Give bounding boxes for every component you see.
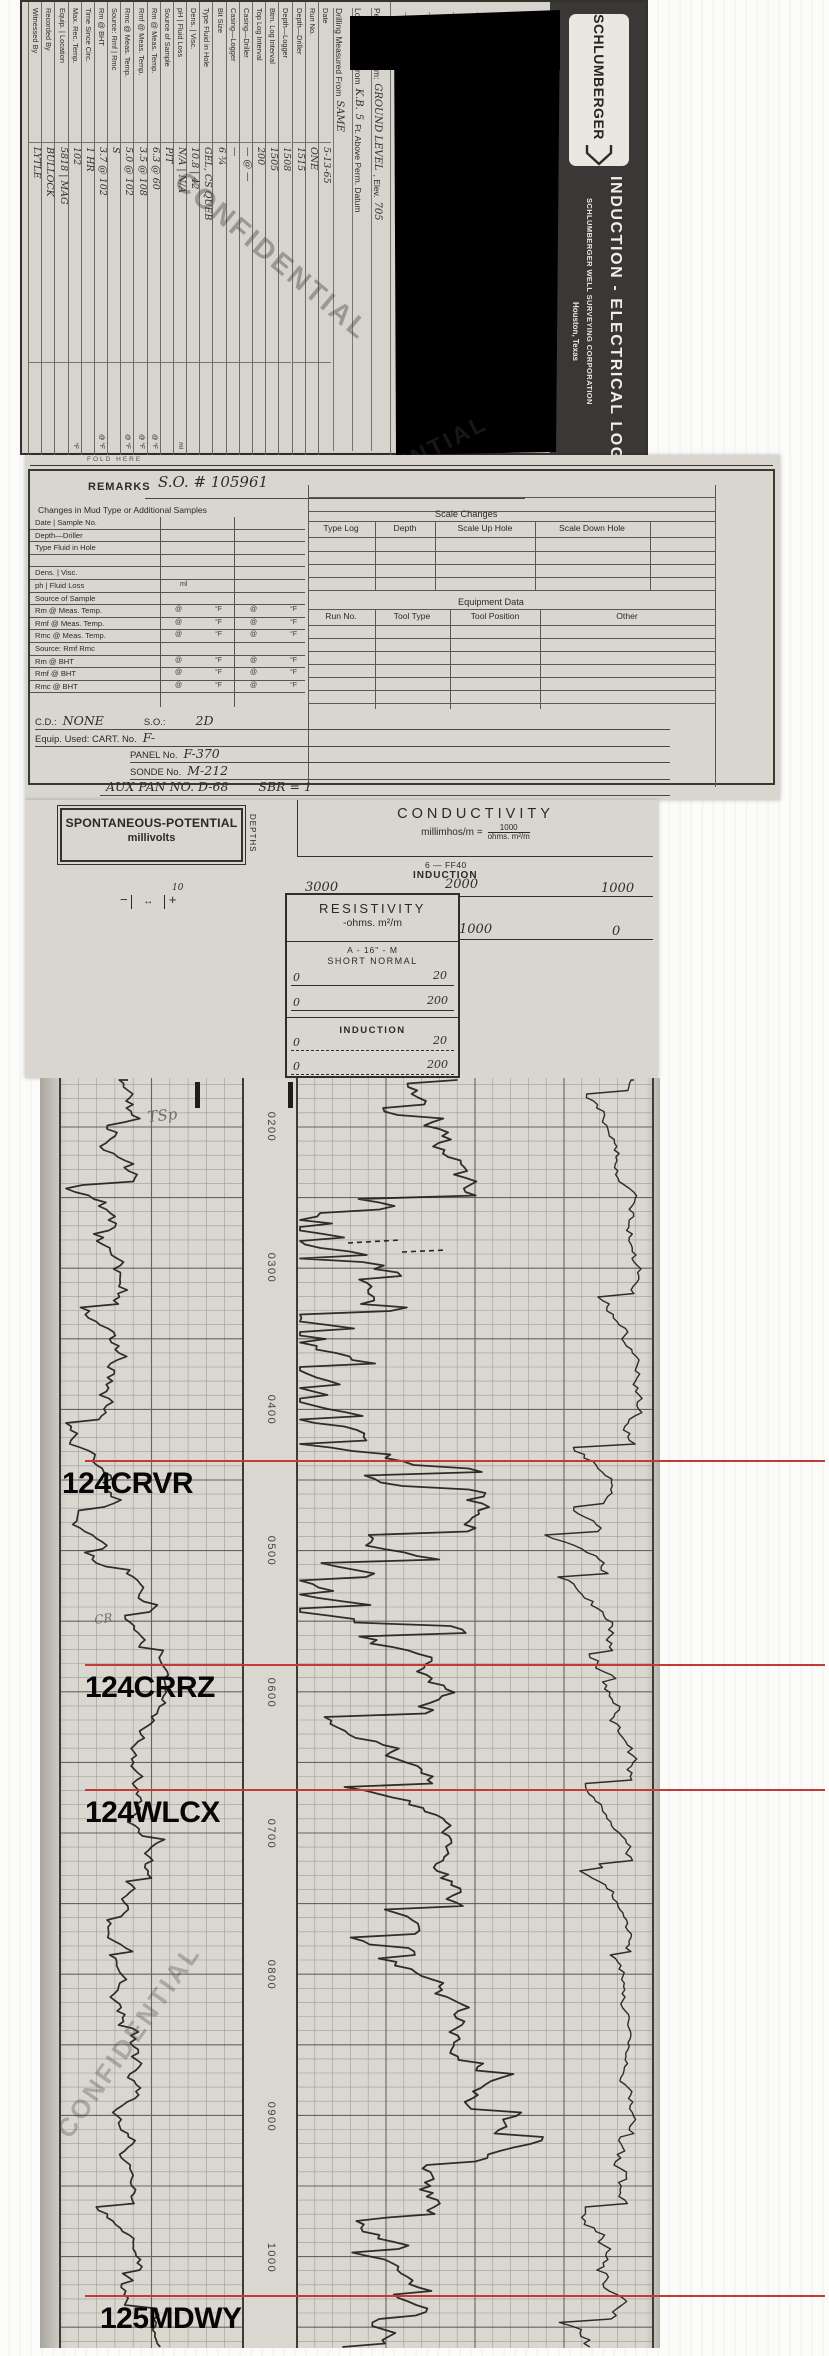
run-table-row: Max. Rec. Temp.102°F: [68, 2, 81, 457]
log-measured-line: Log Measured From K.B. 5 Ft. Above Perm.…: [352, 8, 372, 451]
temp-mark: @: [250, 631, 257, 638]
run-row-value: 5-13-65: [321, 147, 332, 184]
column-divider: [435, 521, 436, 591]
run-row-label: Top Log Interval: [255, 8, 264, 61]
pencil-note: CR: [93, 1611, 113, 1627]
run-row-value: 102: [71, 147, 82, 165]
cell-divider: [266, 362, 278, 363]
temp-mark: @: [250, 682, 257, 689]
drilling-measured-line: Drilling Measured From SAME: [333, 8, 353, 451]
footer-value: NONE: [63, 713, 104, 728]
run-row-label: Casing—Driller: [242, 8, 251, 58]
cond-scale-1000: 1000: [601, 881, 634, 896]
log-header-sheet: SCHLUMBERGER INDUCTION - ELECTRICAL LOG …: [20, 0, 648, 455]
run-row-label: Depth—Driller: [295, 8, 304, 54]
mud-changes-row: Rmf @ Meas. Temp.@°F@°F: [30, 618, 305, 631]
footer-value: F-370: [184, 746, 220, 761]
cell-divider: [174, 142, 186, 143]
run-table-row: Rm @ BHT3.7 @ 102@ °F: [94, 2, 107, 457]
mud-changes-label: Type Fluid in Hole: [35, 543, 96, 552]
run-row-value: BULLOCK: [44, 147, 55, 197]
sp-scale-marker: − ↔ + 10: [120, 892, 230, 922]
mud-changes-label: Rmf @ BHT: [35, 669, 76, 678]
cell-divider: [213, 362, 225, 363]
header-top-line: [308, 521, 715, 522]
run-row-unit: °F: [72, 442, 79, 449]
run-row-label: Type Fluid in Hole: [202, 8, 211, 67]
cell-divider: [161, 362, 173, 363]
cell-divider: [187, 142, 199, 143]
equipment-column-header: Tool Position: [471, 611, 520, 621]
empty-row-line: [308, 497, 715, 498]
drilling-measured-value: SAME: [334, 100, 345, 132]
cell-divider: [293, 142, 305, 143]
conductivity-scale-line-2: [453, 939, 653, 940]
cell-divider: [227, 142, 239, 143]
temp-mark: @: [175, 631, 182, 638]
run-table-row: Source of SamplePIT: [160, 2, 173, 457]
cell-divider: [69, 142, 81, 143]
unit-mark: ml: [180, 581, 187, 588]
footer-value: M-212: [187, 763, 228, 778]
elev-label: , Elev.: [372, 175, 382, 198]
remarks-label: REMARKS: [88, 481, 151, 493]
run-row-unit: @ °F: [98, 434, 105, 449]
cell-divider: [108, 142, 120, 143]
run-data-table: Date5-13-65Run No.ONEDepth—Driller1515De…: [28, 2, 331, 457]
column-divider: [450, 609, 451, 709]
depth-label: 0700: [265, 1819, 277, 1849]
run-row-value: PIT: [163, 147, 174, 163]
mud-changes-label: Rmf @ Meas. Temp.: [35, 619, 104, 628]
header-bottom-line: [308, 625, 715, 626]
remarks-box: REMARKS S.O. # 105961 Changes in Mud Typ…: [28, 469, 775, 785]
above-datum-label: Ft. Above Perm. Datum: [353, 124, 363, 212]
run-table-row: Time Since Circ.1 HR: [81, 2, 94, 457]
depth-tick: [195, 1082, 200, 1108]
temp-mark: @: [175, 682, 182, 689]
column-divider: [535, 521, 536, 591]
run-table-row: Type Fluid in HoleGEL, CS QUEB: [199, 2, 212, 457]
run-row-value: S: [110, 147, 121, 154]
table-divider: [160, 517, 161, 707]
run-row-value: LYTLE: [31, 147, 42, 179]
temp-mark: °F: [215, 682, 222, 689]
footer-label: Equip. Used: CART. No.: [35, 734, 137, 745]
schlumberger-banner: SCHLUMBERGER INDUCTION - ELECTRICAL LOG …: [550, 2, 646, 457]
mud-changes-row: Rm @ BHT@°F@°F: [30, 656, 305, 669]
footer-value: AUX PAN NO. D-68: [106, 779, 228, 794]
cell-divider: [42, 362, 54, 363]
empty-row-line: [308, 651, 715, 652]
temp-mark: °F: [290, 682, 297, 689]
scale-changes-column-header: Type Log: [323, 523, 358, 533]
cell-divider: [253, 362, 265, 363]
conductivity-header-box: CONDUCTIVITY millimhos/m = 1000 ohms. m²…: [297, 800, 653, 857]
equipment-used-line: AUX PAN NO. D-68SBR = 1: [100, 779, 670, 796]
run-table-row: Equip. | Location5818 | MAG: [54, 2, 67, 457]
formation-marker-label: 125MDWY: [100, 2302, 242, 2336]
run-table-row: Depth—Logger1508: [278, 2, 291, 457]
cell-divider: [121, 362, 133, 363]
cell-divider: [213, 142, 225, 143]
cell-divider: [29, 142, 41, 143]
run-row-label: Btm. Log Interval: [268, 8, 277, 64]
mud-changes-row: ph | Fluid Lossml: [30, 580, 305, 593]
mud-changes-label: Rm @ Meas. Temp.: [35, 606, 102, 615]
temp-mark: °F: [290, 606, 297, 613]
cell-divider: [134, 362, 146, 363]
schlumberger-logo-text: SCHLUMBERGER: [591, 14, 607, 140]
equipment-data-title: Equipment Data: [458, 597, 524, 607]
footer-label: SONDE No.: [130, 767, 181, 778]
remarks-sheet: FOLD HERE REMARKS S.O. # 105961 Changes …: [25, 455, 780, 800]
empty-row-line: [308, 677, 715, 678]
ind-scale1-left: 0: [293, 1036, 300, 1049]
cell-divider: [240, 142, 252, 143]
cell-divider: [200, 142, 212, 143]
run-table-row: Recorded ByBULLOCK: [41, 2, 54, 457]
conductivity-title: CONDUCTIVITY: [298, 806, 653, 822]
remarks-underline: [145, 498, 525, 499]
run-row-value: 5.0 @ 102: [123, 147, 134, 196]
sp-header-box: SPONTANEOUS-POTENTIAL millivolts: [60, 808, 243, 862]
run-row-unit: @ °F: [151, 434, 158, 449]
empty-row-line: [308, 590, 715, 591]
run-row-value: 5818 | MAG: [58, 147, 69, 205]
scale-changes-column-header: Scale Down Hole: [559, 523, 625, 533]
run-row-label: Recorded By: [44, 8, 53, 51]
temp-mark: @: [175, 619, 182, 626]
temp-mark: °F: [290, 657, 297, 664]
ind-scale1-right: 20: [433, 1034, 447, 1047]
induction-scale-1: [291, 1050, 454, 1051]
mud-changes-label: Rm @ BHT: [35, 657, 74, 666]
cell-divider: [69, 362, 81, 363]
formation-marker-line: [85, 1664, 825, 1666]
temp-mark: °F: [290, 669, 297, 676]
cell-divider: [200, 362, 212, 363]
run-table-row: Dens. | Visc.10.8 | 42: [186, 2, 199, 457]
run-row-value: 200: [255, 147, 266, 165]
empty-row-line: [308, 564, 715, 565]
run-table-row: Depth—Driller1515: [292, 2, 305, 457]
mud-changes-label: Source of Sample: [35, 594, 95, 603]
depth-label: 0600: [265, 1678, 277, 1708]
footer-label: PANEL No.: [130, 750, 178, 761]
log-measured-label: Log Measured From: [353, 8, 363, 85]
cond-scale2-0: 0: [612, 924, 620, 939]
run-table-row: Btm. Log Interval1505: [265, 2, 278, 457]
mud-changes-label: Rmc @ Meas. Temp.: [35, 631, 106, 640]
divider: [287, 941, 458, 942]
run-row-label: Max. Rec. Temp.: [71, 8, 80, 63]
run-row-value: 6 ¾: [216, 147, 227, 165]
run-row-label: Source of Sample: [163, 8, 172, 67]
equipment-used-line: SONDE No.M-212: [130, 763, 670, 780]
mud-changes-row: Rmc @ BHT@°F@°F: [30, 681, 305, 694]
scale-changes-column-header: Scale Up Hole: [458, 523, 513, 533]
column-divider: [650, 521, 651, 591]
log-grid-chart: 020003000400050006000700080009001000TSpC…: [0, 1078, 829, 2356]
cell-divider: [240, 362, 252, 363]
empty-row-line: [308, 551, 715, 552]
rotated-header-form: SCHLUMBERGER INDUCTION - ELECTRICAL LOG …: [20, 0, 648, 455]
footer-label: S.O.:: [144, 717, 166, 728]
depth-label: 0500: [265, 1536, 277, 1566]
equipment-used-line: Equip. Used: CART. No.F-: [35, 730, 670, 747]
permanent-datum-label: Permanent Datum:: [372, 8, 382, 79]
resistivity-title: RESISTIVITY: [287, 901, 458, 916]
schlumberger-logo: SCHLUMBERGER: [569, 14, 629, 166]
run-row-label: Run No.: [308, 8, 317, 35]
permanent-datum-value: GROUND LEVEL: [372, 83, 383, 170]
equipment-used-line: C.D.:NONES.O.:2D: [35, 713, 670, 730]
run-table-row: Witnessed ByLYTLE: [28, 2, 41, 457]
schlumberger-chevron-icon: [582, 144, 616, 166]
cond-scale-2000: 2000: [445, 877, 478, 892]
mud-changes-label: Dens. | Visc.: [35, 568, 77, 577]
temp-mark: °F: [215, 669, 222, 676]
run-table-row: Rmc @ Meas. Temp.5.0 @ 102@ °F: [120, 2, 133, 457]
divider: [287, 1017, 458, 1018]
depth-label: 0300: [265, 1253, 277, 1283]
temp-mark: @: [250, 619, 257, 626]
footer-value: SBR = 1: [258, 779, 312, 794]
sp-scale-bar: ↔: [131, 895, 165, 909]
sn-scale2-right: 200: [427, 994, 448, 1007]
mud-changes-row: Rmc @ Meas. Temp.@°F@°F: [30, 630, 305, 643]
empty-row-line: [308, 511, 715, 512]
equipment-used-line: PANEL No.F-370: [130, 746, 670, 763]
run-table-row: Run No.ONE: [305, 2, 318, 457]
sp-minus-sign: −: [120, 892, 128, 907]
run-row-value: 3.7 @ 102: [97, 147, 108, 196]
cell-divider: [55, 142, 67, 143]
run-row-unit: @ °F: [138, 434, 145, 449]
run-row-label: Dens. | Visc.: [189, 8, 198, 49]
run-row-label: Depth—Logger: [282, 8, 291, 58]
short-normal-scale-1: [291, 985, 454, 986]
table-divider: [234, 517, 235, 707]
mud-changes-label: Source: Rmf Rmc: [35, 644, 95, 653]
run-row-label: Casing—Logger: [229, 8, 238, 61]
temp-mark: °F: [215, 631, 222, 638]
datum-block: Permanent Datum: GROUND LEVEL , Elev. 70…: [331, 2, 391, 457]
sn-scale2-left: 0: [293, 996, 300, 1009]
sn-scale1-left: 0: [293, 971, 300, 984]
resistivity-units: -ohms. m²/m: [287, 917, 458, 929]
run-row-label: Date: [321, 8, 330, 24]
mud-changes-row: Rmf @ BHT@°F@°F: [30, 668, 305, 681]
short-normal-scale-2: [291, 1010, 454, 1011]
mud-changes-row: [30, 555, 305, 568]
run-row-label: Equip. | Location: [58, 8, 67, 63]
mud-changes-row: Source: Rmf Rmc: [30, 643, 305, 656]
cell-divider: [227, 362, 239, 363]
column-divider: [540, 609, 541, 709]
company-city: Houston, Texas: [571, 302, 580, 361]
tool-line: 6 — FF40: [425, 860, 467, 870]
ind-scale2-right: 200: [427, 1058, 448, 1071]
formation-marker-label: 124WLCX: [85, 1796, 220, 1830]
mud-changes-row: Source of Sample: [30, 593, 305, 606]
short-normal-label: SHORT NORMAL: [287, 956, 458, 966]
conductivity-units: millimhos/m = 1000 ohms. m²/m: [298, 824, 653, 841]
cell-divider: [266, 142, 278, 143]
elev-value: 705: [372, 202, 383, 221]
company-subtitle: SCHLUMBERGER WELL SURVEYING CORPORATION: [585, 198, 594, 405]
mud-changes-label: Date | Sample No.: [35, 518, 97, 527]
cell-divider: [306, 142, 318, 143]
mud-changes-row: Date | Sample No.: [30, 517, 305, 530]
permanent-datum-line: Permanent Datum: GROUND LEVEL , Elev. 70…: [371, 8, 391, 451]
depth-label: 0400: [265, 1395, 277, 1425]
run-row-unit: ml: [177, 442, 184, 449]
column-divider: [375, 521, 376, 591]
cell-divider: [95, 142, 107, 143]
scale-changes-title: Scale Changes: [435, 509, 497, 519]
empty-row-line: [308, 664, 715, 665]
conductivity-units-text: millimhos/m =: [421, 827, 482, 838]
mud-changes-row: Dens. | Visc.: [30, 567, 305, 580]
fold-here-label: FOLD HERE: [87, 456, 142, 463]
run-row-label: pH | Fluid Loss: [176, 8, 185, 57]
log-type-title: INDUCTION - ELECTRICAL LOG: [606, 176, 624, 456]
resistivity-header-box: RESISTIVITY -ohms. m²/m A - 16" - M SHOR…: [285, 893, 460, 1078]
depths-column-label: DEPTHS: [248, 814, 257, 852]
temp-mark: °F: [215, 657, 222, 664]
run-row-value: — @ —: [242, 147, 253, 182]
log-measured-offset: 5: [353, 114, 364, 120]
run-row-value: ONE: [308, 147, 319, 170]
temp-mark: °F: [290, 619, 297, 626]
table-right-border: [715, 485, 716, 787]
run-row-label: Witnessed By: [31, 8, 40, 53]
run-row-value: —: [229, 147, 240, 157]
mud-changes-label: Depth—Driller: [35, 531, 83, 540]
mud-changes-row: Depth—Driller: [30, 530, 305, 543]
cell-divider: [82, 362, 94, 363]
run-row-label: Rmf @ Meas. Temp.: [137, 8, 146, 75]
empty-row-line: [308, 638, 715, 639]
cell-divider: [279, 362, 291, 363]
cell-divider: [82, 142, 94, 143]
cell-divider: [42, 142, 54, 143]
run-row-label: Source: Rmf | Rmc: [110, 8, 119, 70]
drilling-measured-label: Drilling Measured From: [334, 8, 344, 96]
temp-mark: °F: [290, 631, 297, 638]
cell-divider: [161, 142, 173, 143]
empty-row-line: [308, 690, 715, 691]
equipment-column-header: Tool Type: [394, 611, 431, 621]
run-row-value: 6.3 @ 60: [150, 147, 161, 190]
cell-divider: [108, 362, 120, 363]
scale-changes-column-header: Depth: [394, 523, 417, 533]
ind-scale2-left: 0: [293, 1060, 300, 1073]
empty-row-line: [308, 577, 715, 578]
cell-divider: [293, 362, 305, 363]
mud-changes-row: Type Fluid in Hole: [30, 542, 305, 555]
run-table-row: Date5-13-65: [318, 2, 331, 457]
induction-scale-2: [291, 1074, 454, 1075]
mud-changes-label: ph | Fluid Loss: [35, 581, 84, 590]
run-row-label: Rm @ BHT: [97, 8, 106, 46]
fraction-denominator: ohms. m²/m: [488, 833, 530, 841]
column-divider: [375, 609, 376, 709]
temp-mark: °F: [215, 619, 222, 626]
log-measured-value: K.B.: [353, 89, 364, 110]
header-top-line: [308, 609, 715, 610]
temp-mark: @: [175, 669, 182, 676]
sp-units: millivolts: [62, 832, 241, 844]
run-row-unit: @ °F: [124, 434, 131, 449]
run-row-label: Time Since Circ.: [84, 8, 93, 62]
header-bottom-line: [308, 537, 715, 538]
run-row-label: Rm @ Meas. Temp.: [150, 8, 159, 73]
pencil-note: TSp: [147, 1105, 179, 1126]
footer-value: F-: [143, 730, 155, 745]
cell-divider: [174, 362, 186, 363]
conductivity-fraction: 1000 ohms. m²/m: [488, 824, 530, 841]
run-row-value: 3.5 @ 108: [137, 147, 148, 196]
cell-divider: [306, 362, 318, 363]
depth-label: 0800: [265, 1960, 277, 1990]
run-row-value: 1515: [295, 147, 306, 171]
depth-label: 0200: [265, 1112, 277, 1142]
equipment-column-header: Run No.: [325, 611, 357, 621]
run-table-row: Rmf @ Meas. Temp.3.5 @ 108@ °F: [133, 2, 146, 457]
cell-divider: [95, 362, 107, 363]
equipment-column-header: Other: [616, 611, 638, 621]
run-row-value: 1 HR: [84, 147, 95, 172]
cell-divider: [253, 142, 265, 143]
temp-mark: @: [250, 669, 257, 676]
sp-plus-sign: +: [169, 892, 177, 907]
formation-marker-line: [85, 2295, 825, 2297]
run-row-label: Bit Size: [216, 8, 225, 33]
formation-marker-label: 124CRRZ: [85, 1671, 215, 1705]
cond-scale2-1000: 1000: [459, 922, 492, 937]
temp-mark: °F: [215, 606, 222, 613]
sn-scale1-right: 20: [433, 969, 447, 982]
sp-title: SPONTANEOUS-POTENTIAL: [62, 816, 241, 830]
cell-divider: [148, 362, 160, 363]
temp-mark: @: [175, 606, 182, 613]
temp-mark: @: [250, 657, 257, 664]
redacted-well-block: [390, 2, 550, 457]
run-row-value: 1508: [282, 147, 293, 171]
mud-changes-title: Changes in Mud Type or Additional Sample…: [38, 505, 207, 515]
formation-marker-line: [85, 1460, 825, 1462]
run-table-row: pH | Fluid LossN/A | N/Aml: [173, 2, 186, 457]
empty-row-line: [308, 703, 715, 704]
depth-label: 0900: [265, 2102, 277, 2132]
depth-label: 1000: [265, 2243, 277, 2273]
run-table-row: Rm @ Meas. Temp.6.3 @ 60@ °F: [147, 2, 160, 457]
temp-mark: @: [175, 657, 182, 664]
mud-changes-row: Rm @ Meas. Temp.@°F@°F: [30, 605, 305, 618]
cell-divider: [319, 362, 331, 363]
cell-divider: [134, 142, 146, 143]
run-row-label: Rmc @ Meas. Temp.: [123, 8, 132, 77]
cell-divider: [279, 142, 291, 143]
temp-mark: @: [250, 606, 257, 613]
formation-marker-line: [85, 1789, 825, 1791]
depth-tick: [288, 1082, 293, 1108]
footer-value: 2D: [196, 713, 214, 728]
run-row-value: 1505: [268, 147, 279, 171]
